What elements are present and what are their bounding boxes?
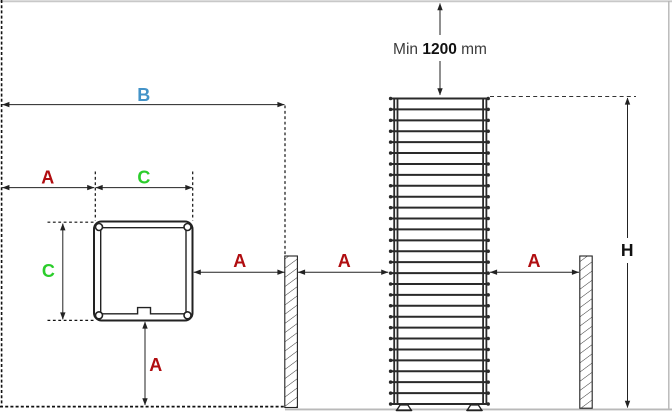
- svg-text:A: A: [528, 251, 541, 271]
- svg-text:A: A: [233, 251, 246, 271]
- svg-text:B: B: [137, 85, 150, 105]
- svg-text:A: A: [149, 355, 162, 375]
- svg-text:H: H: [621, 240, 634, 260]
- svg-text:A: A: [338, 251, 351, 271]
- svg-text:A: A: [41, 167, 54, 187]
- svg-text:Min 1200 mm: Min 1200 mm: [393, 41, 487, 58]
- svg-text:C: C: [137, 167, 150, 187]
- svg-text:C: C: [42, 261, 55, 281]
